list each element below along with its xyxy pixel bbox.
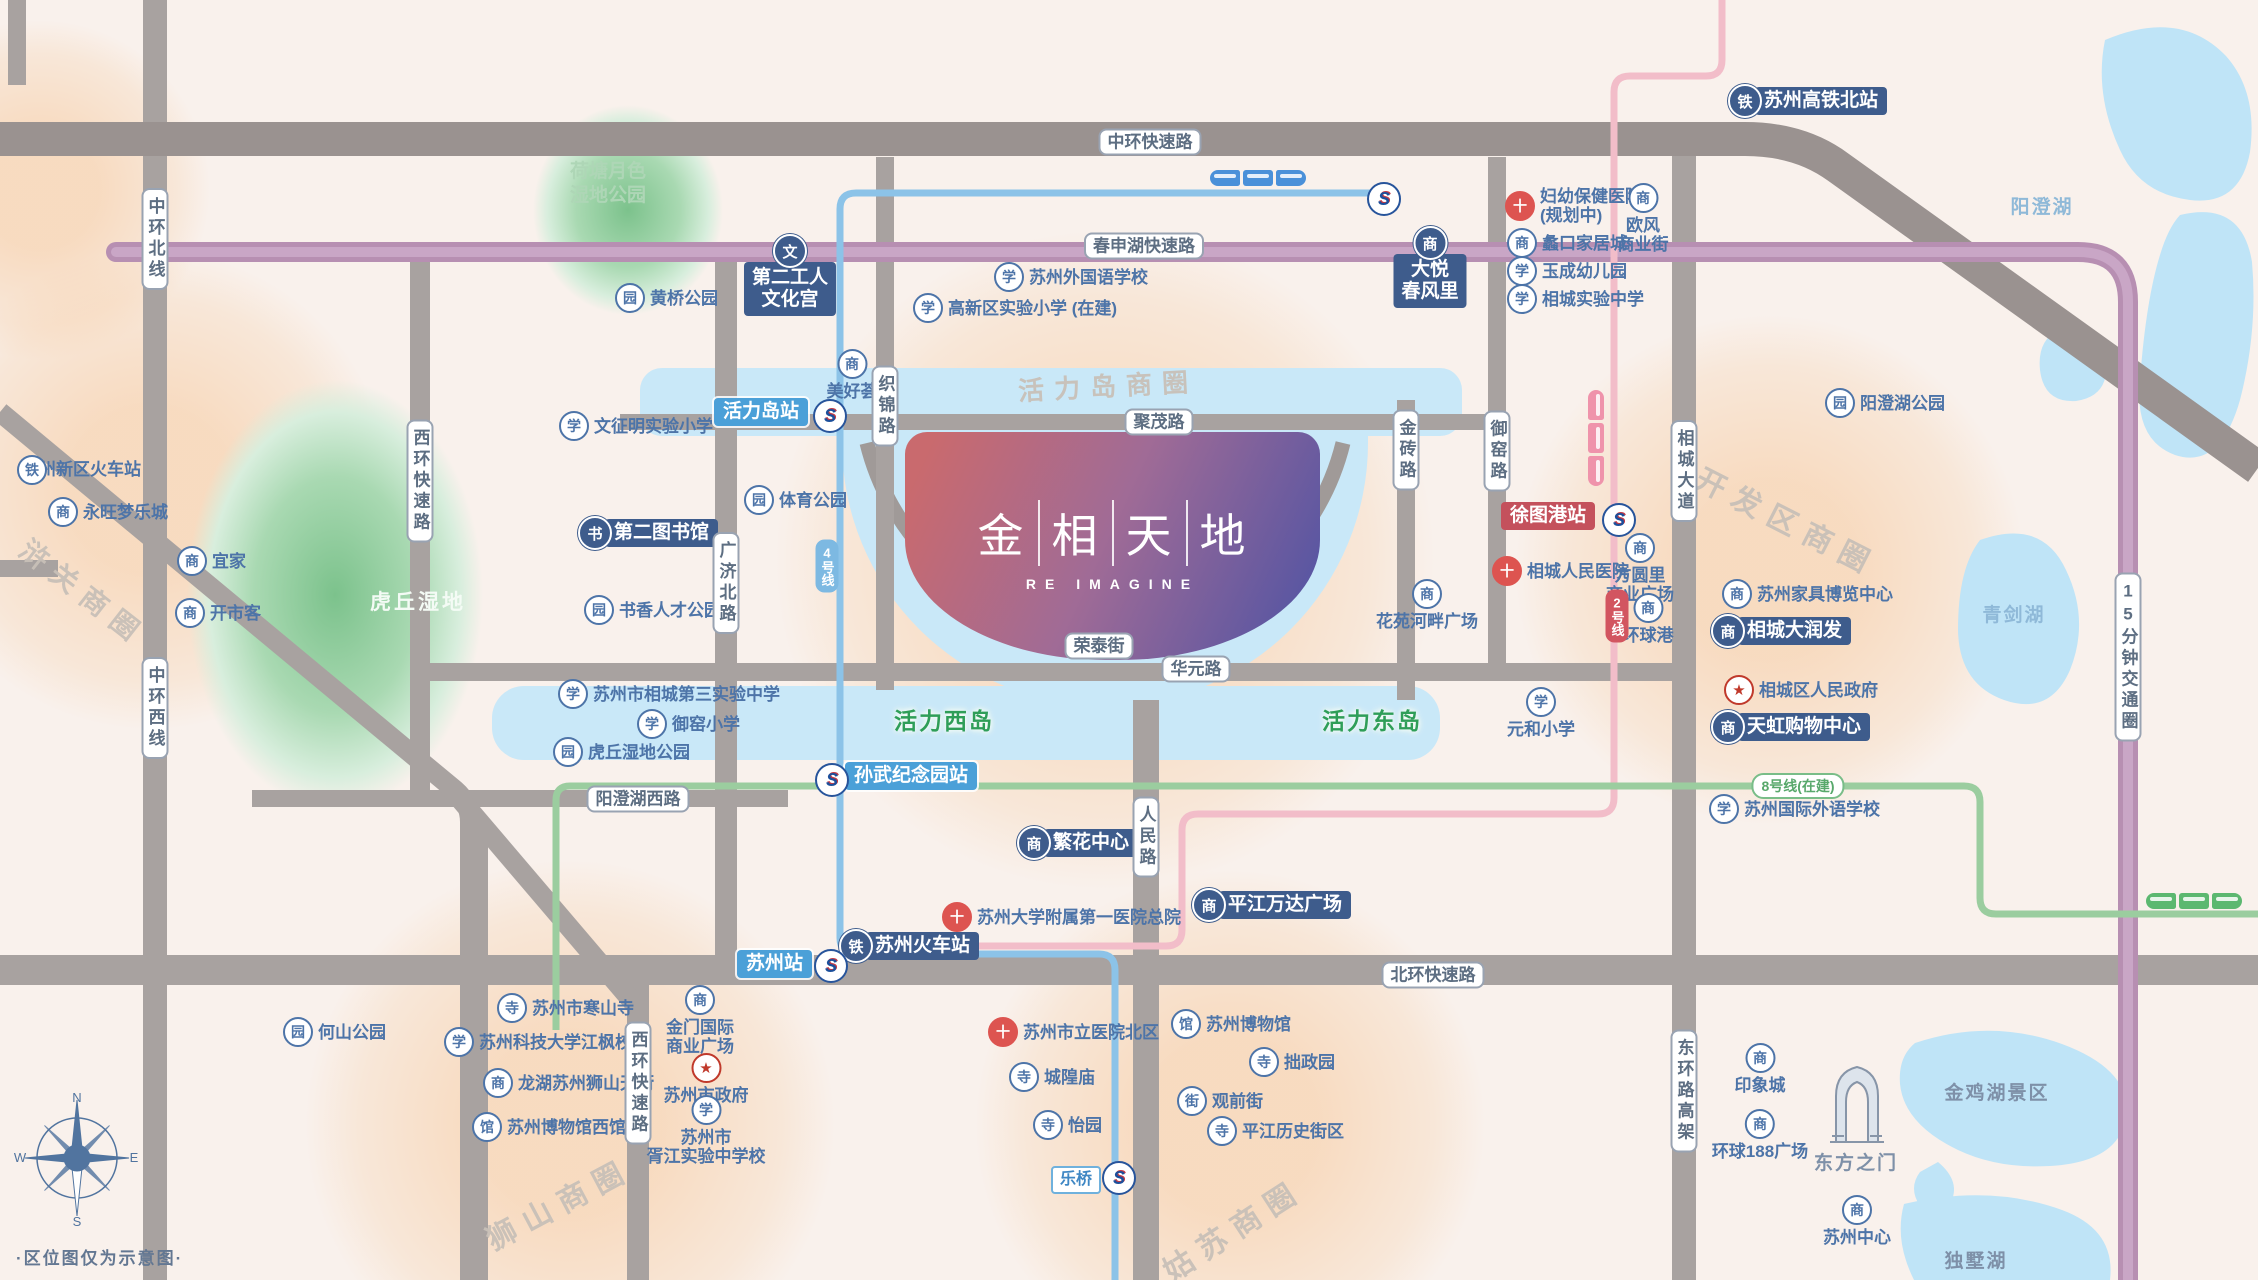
- school-icon: 学: [558, 679, 588, 709]
- poi-苏州市寒山寺: 寺苏州市寒山寺: [497, 993, 634, 1023]
- poi-label-line: 苏州中心: [1823, 1228, 1891, 1247]
- hosp-icon: 十: [988, 1017, 1018, 1047]
- badge-text: 活力岛站: [714, 398, 808, 426]
- poi-label-line: 环球港: [1623, 626, 1674, 645]
- poi-label: 苏州外国语学校: [1029, 268, 1148, 287]
- map-text-line: 金鸡湖景区: [1944, 1083, 2049, 1104]
- shop-icon: 商: [48, 497, 78, 527]
- poi-宜家: 商宜家: [177, 546, 246, 576]
- project-logo-char: 天: [1112, 500, 1186, 566]
- poi-label: 苏州市立医院北区: [1023, 1023, 1159, 1042]
- shop-icon: 商: [1633, 593, 1663, 623]
- poi-label-line: 体育公园: [779, 491, 847, 510]
- poi-label-line: 玉成幼儿园: [1542, 262, 1627, 281]
- poi-label-line: 怡园: [1068, 1116, 1102, 1135]
- map-text-虎丘湿地: 虎丘湿地: [370, 586, 466, 616]
- poi-label-line: 环球188广场: [1712, 1142, 1808, 1161]
- temple-icon: 寺: [1207, 1116, 1237, 1146]
- map-text-荷塘月色: 荷塘月色湿地公园: [570, 160, 646, 208]
- poi-label-line: 开市客: [210, 604, 261, 623]
- badge-icon: 商: [1017, 826, 1051, 860]
- project-logo-char: 相: [1038, 500, 1112, 566]
- poi-label: 拙政园: [1284, 1053, 1335, 1072]
- badge-text: 苏州火车站: [866, 932, 979, 960]
- badge-icon: 书: [578, 516, 612, 550]
- map-text-独墅湖: 独墅湖: [1944, 1246, 2007, 1273]
- poi-阳澄湖公园: 园阳澄湖公园: [1825, 388, 1945, 418]
- poi-label: 美好荟: [827, 382, 878, 401]
- poi-label: 高新区实验小学 (在建): [948, 299, 1117, 318]
- badge-孙武纪念园站: 孙武纪念园站: [852, 762, 977, 790]
- poi-label-line2: 胥江实验中学校: [647, 1147, 766, 1166]
- poi-印象城: 商印象城: [1735, 1043, 1786, 1095]
- project-logo: 金相天地: [966, 500, 1260, 566]
- school-icon: 学: [559, 411, 589, 441]
- metro-s: S: [1613, 511, 1625, 529]
- metro-s: S: [826, 771, 838, 789]
- road: [252, 790, 788, 807]
- shop-icon: 商: [177, 546, 207, 576]
- road-label: 西环快速路: [625, 1022, 652, 1145]
- train-car: [1588, 390, 1604, 420]
- poi-label-line: 苏州家具博览中心: [1757, 585, 1893, 604]
- poi-label-line2: 商业街: [1618, 235, 1669, 254]
- poi-label-line: 观前街: [1212, 1092, 1263, 1111]
- map-text-金鸡湖景区: 金鸡湖景区: [1944, 1078, 2049, 1105]
- poi-怡园: 寺怡园: [1033, 1110, 1102, 1140]
- poi-label-line: 宜家: [212, 552, 246, 571]
- poi-label-line: 苏州博物馆: [1206, 1015, 1291, 1034]
- poi-label: 苏州市寒山寺: [532, 999, 634, 1018]
- park-icon: 园: [553, 737, 583, 767]
- poi-苏州家具博览中心: 商苏州家具博览中心: [1722, 579, 1893, 609]
- school-icon: 学: [637, 709, 667, 739]
- shop-icon: 商: [1628, 183, 1658, 213]
- park-icon: 园: [1825, 388, 1855, 418]
- road-label: 御窑路: [1484, 411, 1511, 492]
- badge-text: 繁花中心: [1044, 829, 1138, 857]
- poi-label: 阳澄湖公园: [1860, 394, 1945, 413]
- poi-label-line: 印象城: [1735, 1076, 1786, 1095]
- street-icon: 街: [1177, 1086, 1207, 1116]
- poi-虎丘湿地公园: 园虎丘湿地公园: [553, 737, 690, 767]
- map-text-阳澄湖: 阳澄湖: [2010, 192, 2073, 219]
- poi-label: 宜家: [212, 552, 246, 571]
- map-text-line: 湿地公园: [570, 185, 646, 206]
- road-label: 人民路: [1133, 797, 1160, 878]
- poi-label: 欧风商业街: [1618, 216, 1669, 254]
- map-text-line: 活力西岛: [894, 708, 994, 734]
- poi-永旺梦乐城: 商永旺梦乐城: [48, 497, 168, 527]
- school-icon: 学: [1526, 687, 1556, 717]
- poi-label: 平江历史街区: [1242, 1122, 1344, 1141]
- badge-繁花中心: 商繁花中心: [1017, 826, 1138, 860]
- school-icon: 学: [994, 262, 1024, 292]
- poi-苏州博物馆西馆: 馆苏州博物馆西馆: [472, 1112, 626, 1142]
- badge-第二工人: 文第二工人文化宫: [744, 234, 836, 316]
- lake-shape: [2102, 27, 2252, 200]
- poi-黄桥公园: 园黄桥公园: [615, 283, 718, 313]
- map-text-青剑湖: 青剑湖: [1982, 600, 2045, 627]
- location-map: 金相天地 RE IMAGINE N E S W ·区位图仅为示意图·: [0, 0, 2258, 1280]
- poi-label: 苏州中心: [1823, 1228, 1891, 1247]
- gov-icon: ★: [1724, 675, 1754, 705]
- poi-label-line: 蠡口家居城: [1542, 234, 1627, 253]
- poi-label: 怡园: [1068, 1116, 1102, 1135]
- badge-text: 平江万达广场: [1219, 891, 1351, 919]
- poi-label: 苏州国际外语学校: [1744, 800, 1880, 819]
- road-label: 金砖路: [1393, 410, 1420, 491]
- poi-label-line: 文征明实验小学: [594, 417, 713, 436]
- badge-icon: 铁: [1728, 84, 1762, 118]
- temple-icon: 寺: [1033, 1110, 1063, 1140]
- poi-label: 相城实验中学: [1542, 290, 1644, 309]
- poi-label-line: 相城实验中学: [1542, 290, 1644, 309]
- project-logo-char: 地: [1186, 500, 1260, 566]
- shop-icon: 商: [483, 1068, 513, 1098]
- road-label: 西环快速路: [407, 420, 434, 543]
- poi-玉成幼儿园: 学玉成幼儿园: [1507, 256, 1627, 286]
- poi-label: 苏州科技大学江枫校区: [479, 1033, 649, 1052]
- shop-icon: 商: [1745, 1043, 1775, 1073]
- badge-大悦: 商大悦春风里: [1393, 226, 1466, 308]
- poi-label: 书香人才公园: [619, 601, 721, 620]
- hosp-icon: 十: [1505, 191, 1535, 221]
- road-label: 华元路: [1162, 656, 1231, 683]
- shop-icon: 商: [1842, 1195, 1872, 1225]
- badge-text: 孙武纪念园站: [845, 762, 977, 790]
- poi-书香人才公园: 园书香人才公园: [584, 595, 721, 625]
- poi-文征明实验小学: 学文征明实验小学: [559, 411, 713, 441]
- shop-icon: 商: [175, 598, 205, 628]
- shop-icon: 商: [1745, 1109, 1775, 1139]
- school-icon: 学: [444, 1027, 474, 1057]
- metro-station-icon: S: [815, 763, 849, 797]
- badge-text: 第二工人文化宫: [744, 262, 836, 316]
- road-label: 阳澄湖西路: [587, 786, 690, 813]
- poi-苏州市相城第三实验中学: 学苏州市相城第三实验中学: [558, 679, 780, 709]
- compass-s: S: [73, 1214, 82, 1229]
- map-text-活力西岛: 活力西岛: [894, 702, 994, 736]
- poi-label: 苏州市相城第三实验中学: [593, 685, 780, 704]
- metro-station-icon: S: [813, 399, 847, 433]
- poi-label-line: 相城区人民政府: [1759, 681, 1878, 700]
- poi-城隍庙: 寺城隍庙: [1009, 1062, 1095, 1092]
- road-label: 东环路高架: [1671, 1030, 1698, 1153]
- metro-line-tag: 4号线: [816, 540, 839, 593]
- hosp-icon: 十: [942, 902, 972, 932]
- poi-label-line: 阳澄湖公园: [1860, 394, 1945, 413]
- temple-icon: 寺: [1009, 1062, 1039, 1092]
- badge-line: 春风里: [1401, 281, 1458, 302]
- temple-icon: 寺: [1249, 1047, 1279, 1077]
- poi-label-line: 拙政园: [1284, 1053, 1335, 1072]
- poi-label-line: 城隍庙: [1044, 1068, 1095, 1087]
- map-text-东方之门: 东方之门: [1814, 1148, 1898, 1175]
- poi-金门国际: 商金门国际商业广场: [666, 985, 734, 1056]
- poi-label: 永旺梦乐城: [83, 503, 168, 522]
- metro-line-tag: 2号线: [1606, 590, 1629, 643]
- poi-label: 观前街: [1212, 1092, 1263, 1111]
- poi-label: 相城区人民政府: [1759, 681, 1878, 700]
- poi-label-line: 花苑河畔广场: [1376, 612, 1478, 631]
- poi-label-line: 苏州博物馆西馆: [507, 1118, 626, 1137]
- badge-text: 苏州高铁北站: [1755, 87, 1887, 115]
- poi-苏州博物馆: 馆苏州博物馆: [1171, 1009, 1291, 1039]
- poi-label: 环球港: [1623, 626, 1674, 645]
- badge-乐桥: 乐桥: [1058, 1166, 1101, 1194]
- temple-icon: 寺: [497, 993, 527, 1023]
- train-icon: [1210, 170, 1306, 186]
- metro-s: S: [825, 957, 837, 975]
- poi-label-line: 高新区实验小学 (在建): [948, 299, 1117, 318]
- poi-label: 苏州博物馆西馆: [507, 1118, 626, 1137]
- poi-蠡口家居城: 商蠡口家居城: [1507, 228, 1627, 258]
- metro-station-icon: S: [1602, 503, 1636, 537]
- badge-平江万达广场: 商平江万达广场: [1192, 888, 1351, 922]
- gov-icon: ★: [691, 1053, 721, 1083]
- map-text-line: 独墅湖: [1944, 1251, 2007, 1272]
- shop-icon: 商: [685, 985, 715, 1015]
- badge-第二图书馆: 书第二图书馆: [578, 516, 718, 550]
- road-label: 广济北路: [713, 532, 740, 634]
- poi-苏州新区火车站: 铁苏州新区火车站: [17, 460, 141, 479]
- poi-观前街: 街观前街: [1177, 1086, 1263, 1116]
- metro-station-icon: S: [1102, 1161, 1136, 1195]
- poi-label: 体育公园: [779, 491, 847, 510]
- poi-相城实验中学: 学相城实验中学: [1507, 284, 1644, 314]
- train-icon: 铁: [17, 455, 47, 485]
- poi-label-line: 御窑小学: [672, 715, 740, 734]
- badge-苏州站: 苏州站: [744, 950, 812, 978]
- metro-station-icon: S: [1367, 182, 1401, 216]
- poi-label-line: 永旺梦乐城: [83, 503, 168, 522]
- compass-n: N: [72, 1090, 81, 1105]
- compass-rose: N E S W: [12, 1090, 142, 1230]
- poi-环球188广场: 商环球188广场: [1712, 1109, 1808, 1161]
- poi-label-line: 平江历史街区: [1242, 1122, 1344, 1141]
- map-text-line: 虎丘湿地: [370, 591, 466, 614]
- poi-label-line: 苏州市立医院北区: [1023, 1023, 1159, 1042]
- poi-label: 苏州博物馆: [1206, 1015, 1291, 1034]
- poi-苏州市: 学苏州市胥江实验中学校: [647, 1095, 766, 1166]
- badge-line: 文化宫: [761, 289, 818, 310]
- poi-苏州市立医院北区: 十苏州市立医院北区: [988, 1017, 1159, 1047]
- train-car: [2146, 893, 2176, 909]
- poi-label: 黄桥公园: [650, 289, 718, 308]
- road: [8, 0, 26, 85]
- poi-何山公园: 园何山公园: [283, 1017, 386, 1047]
- poi-label: 苏州大学附属第一医院总院: [977, 908, 1181, 927]
- poi-label: 苏州市胥江实验中学校: [647, 1128, 766, 1166]
- map-disclaimer: ·区位图仅为示意图·: [16, 1244, 183, 1269]
- poi-label: 金门国际商业广场: [666, 1018, 734, 1056]
- school-icon: 学: [1507, 284, 1537, 314]
- badge-相城大润发: 商相城大润发: [1711, 614, 1851, 648]
- poi-label-line: 苏州市寒山寺: [532, 999, 634, 1018]
- museum-icon: 馆: [1171, 1009, 1201, 1039]
- badge-text: 苏州站: [737, 950, 812, 978]
- road-label: 北环快速路: [1382, 962, 1485, 989]
- badge-icon: 商: [1413, 226, 1447, 260]
- school-icon: 学: [691, 1095, 721, 1125]
- poi-label-line: 欧风: [1626, 216, 1660, 235]
- poi-相城区人民政府: ★相城区人民政府: [1724, 675, 1878, 705]
- poi-label: 御窑小学: [672, 715, 740, 734]
- train-car: [1210, 170, 1240, 186]
- metro-s: S: [824, 407, 836, 425]
- poi-平江历史街区: 寺平江历史街区: [1207, 1116, 1344, 1146]
- map-text-line: 荷塘月色: [570, 161, 646, 182]
- park-icon: 园: [283, 1017, 313, 1047]
- park-icon: 园: [744, 485, 774, 515]
- train-car: [2179, 893, 2209, 909]
- badge-text: 天虹购物中心: [1738, 713, 1870, 741]
- project-logo-char: 金: [966, 500, 1038, 566]
- poi-label-line: 苏州科技大学江枫校区: [479, 1033, 649, 1052]
- road-label: 中环快速路: [1099, 129, 1202, 156]
- poi-label: 文征明实验小学: [594, 417, 713, 436]
- badge-icon: 商: [1711, 710, 1745, 744]
- map-text-活力东岛: 活力东岛: [1322, 702, 1422, 736]
- train-icon: [1588, 390, 1604, 486]
- poi-欧风: 商欧风商业街: [1618, 183, 1669, 254]
- poi-label: 城隍庙: [1044, 1068, 1095, 1087]
- road-label: 春申湖快速路: [1084, 233, 1204, 260]
- poi-label-line: 元和小学: [1507, 720, 1575, 739]
- badge-苏州高铁北站: 铁苏州高铁北站: [1728, 84, 1887, 118]
- poi-开市客: 商开市客: [175, 598, 261, 628]
- park-icon: 园: [584, 595, 614, 625]
- badge-line: 大悦: [1411, 259, 1449, 280]
- road-label: 相城大道: [1671, 420, 1698, 522]
- shop-icon: 商: [1412, 579, 1442, 609]
- poi-label: 印象城: [1735, 1076, 1786, 1095]
- compass-e: E: [130, 1150, 139, 1165]
- poi-label-line: 金门国际: [666, 1018, 734, 1037]
- poi-label-line: 苏州外国语学校: [1029, 268, 1148, 287]
- map-text-line: 青剑湖: [1982, 605, 2045, 626]
- metro-station-icon: S: [814, 949, 848, 983]
- road-label: 中环北线: [142, 188, 169, 290]
- poi-御窑小学: 学御窑小学: [637, 709, 740, 739]
- park-icon: 园: [615, 283, 645, 313]
- poi-label: 花苑河畔广场: [1376, 612, 1478, 631]
- poi-元和小学: 学元和小学: [1507, 687, 1575, 739]
- badge-苏州火车站: 铁苏州火车站: [839, 929, 979, 963]
- road-label: 中环西线: [142, 657, 169, 759]
- poi-环球港: 商环球港: [1623, 593, 1674, 645]
- museum-icon: 馆: [472, 1112, 502, 1142]
- shop-icon: 商: [1722, 579, 1752, 609]
- badge-text: 大悦春风里: [1393, 254, 1466, 308]
- poi-label-line: 苏州市: [681, 1128, 732, 1147]
- poi-苏州外国语学校: 学苏州外国语学校: [994, 262, 1148, 292]
- badge-icon: 文: [773, 234, 807, 268]
- poi-label: 玉成幼儿园: [1542, 262, 1627, 281]
- poi-label: 环球188广场: [1712, 1142, 1808, 1161]
- poi-美好荟: 商美好荟: [827, 349, 878, 401]
- compass-w: W: [14, 1150, 27, 1165]
- road-label: 15分钟交通圈: [2115, 573, 2142, 742]
- badge-icon: 商: [1711, 614, 1745, 648]
- poi-苏州中心: 商苏州中心: [1823, 1195, 1891, 1247]
- badge-text: 徐图港站: [1501, 502, 1595, 530]
- poi-label-line: 虎丘湿地公园: [588, 743, 690, 762]
- train-car: [2212, 893, 2242, 909]
- poi-label: 开市客: [210, 604, 261, 623]
- poi-label-line: 苏州市相城第三实验中学: [593, 685, 780, 704]
- poi-花苑河畔广场: 商花苑河畔广场: [1376, 579, 1478, 631]
- badge-icon: 商: [1192, 888, 1226, 922]
- poi-label: 蠡口家居城: [1542, 234, 1627, 253]
- train-car: [1276, 170, 1306, 186]
- metro-s: S: [1113, 1169, 1125, 1187]
- poi-label-line: 书香人才公园: [619, 601, 721, 620]
- poi-label: 虎丘湿地公园: [588, 743, 690, 762]
- poi-label: 元和小学: [1507, 720, 1575, 739]
- road-label: 聚茂路: [1125, 409, 1194, 436]
- project-subtitle: RE IMAGINE: [1026, 576, 1199, 592]
- train-car: [1588, 456, 1604, 486]
- metro-line-tag: 8号线(在建): [1751, 773, 1844, 799]
- gate-of-the-orient-icon: [1828, 1062, 1886, 1144]
- poi-label-line: 何山公园: [318, 1023, 386, 1042]
- shop-icon: 商: [1507, 228, 1537, 258]
- poi-label-line: 美好荟: [827, 382, 878, 401]
- poi-体育公园: 园体育公园: [744, 485, 847, 515]
- train-icon: [2146, 893, 2242, 909]
- poi-label-line: 苏州国际外语学校: [1744, 800, 1880, 819]
- school-icon: 学: [1507, 256, 1537, 286]
- poi-label: 苏州家具博览中心: [1757, 585, 1893, 604]
- train-car: [1243, 170, 1273, 186]
- poi-苏州大学附属第一医院总院: 十苏州大学附属第一医院总院: [942, 902, 1181, 932]
- school-icon: 学: [1709, 794, 1739, 824]
- badge-天虹购物中心: 商天虹购物中心: [1711, 710, 1870, 744]
- badge-活力岛站: 活力岛站: [721, 398, 808, 426]
- poi-label-line2: (规划中): [1540, 206, 1602, 225]
- road: [0, 955, 2258, 985]
- poi-label: 何山公园: [318, 1023, 386, 1042]
- shop-icon: 商: [1625, 533, 1655, 563]
- road-label: 织锦路: [872, 366, 899, 447]
- train-car: [1588, 423, 1604, 453]
- map-text-line: 东方之门: [1814, 1153, 1898, 1174]
- shop-icon: 商: [837, 349, 867, 379]
- school-icon: 学: [913, 293, 943, 323]
- poi-label-line: 方圆里: [1615, 566, 1666, 585]
- poi-label-line: 苏州大学附属第一医院总院: [977, 908, 1181, 927]
- badge-text: 第二图书馆: [605, 519, 718, 547]
- poi-苏州科技大学江枫校区: 学苏州科技大学江枫校区: [444, 1027, 649, 1057]
- road-label: 荣泰街: [1065, 633, 1134, 660]
- hosp-icon: 十: [1492, 556, 1522, 586]
- project-site: 金相天地 RE IMAGINE: [905, 432, 1320, 660]
- metro-s: S: [1378, 190, 1390, 208]
- badge-text: 乐桥: [1051, 1166, 1101, 1194]
- map-text-line: 活力东岛: [1322, 708, 1422, 734]
- poi-拙政园: 寺拙政园: [1249, 1047, 1335, 1077]
- map-text-line: 阳澄湖: [2010, 197, 2073, 218]
- badge-徐图港站: 徐图港站: [1508, 502, 1595, 530]
- poi-label-line: 黄桥公园: [650, 289, 718, 308]
- badge-line: 第二工人: [752, 267, 828, 288]
- poi-高新区实验小学 (在建): 学高新区实验小学 (在建): [913, 293, 1117, 323]
- badge-text: 相城大润发: [1738, 617, 1851, 645]
